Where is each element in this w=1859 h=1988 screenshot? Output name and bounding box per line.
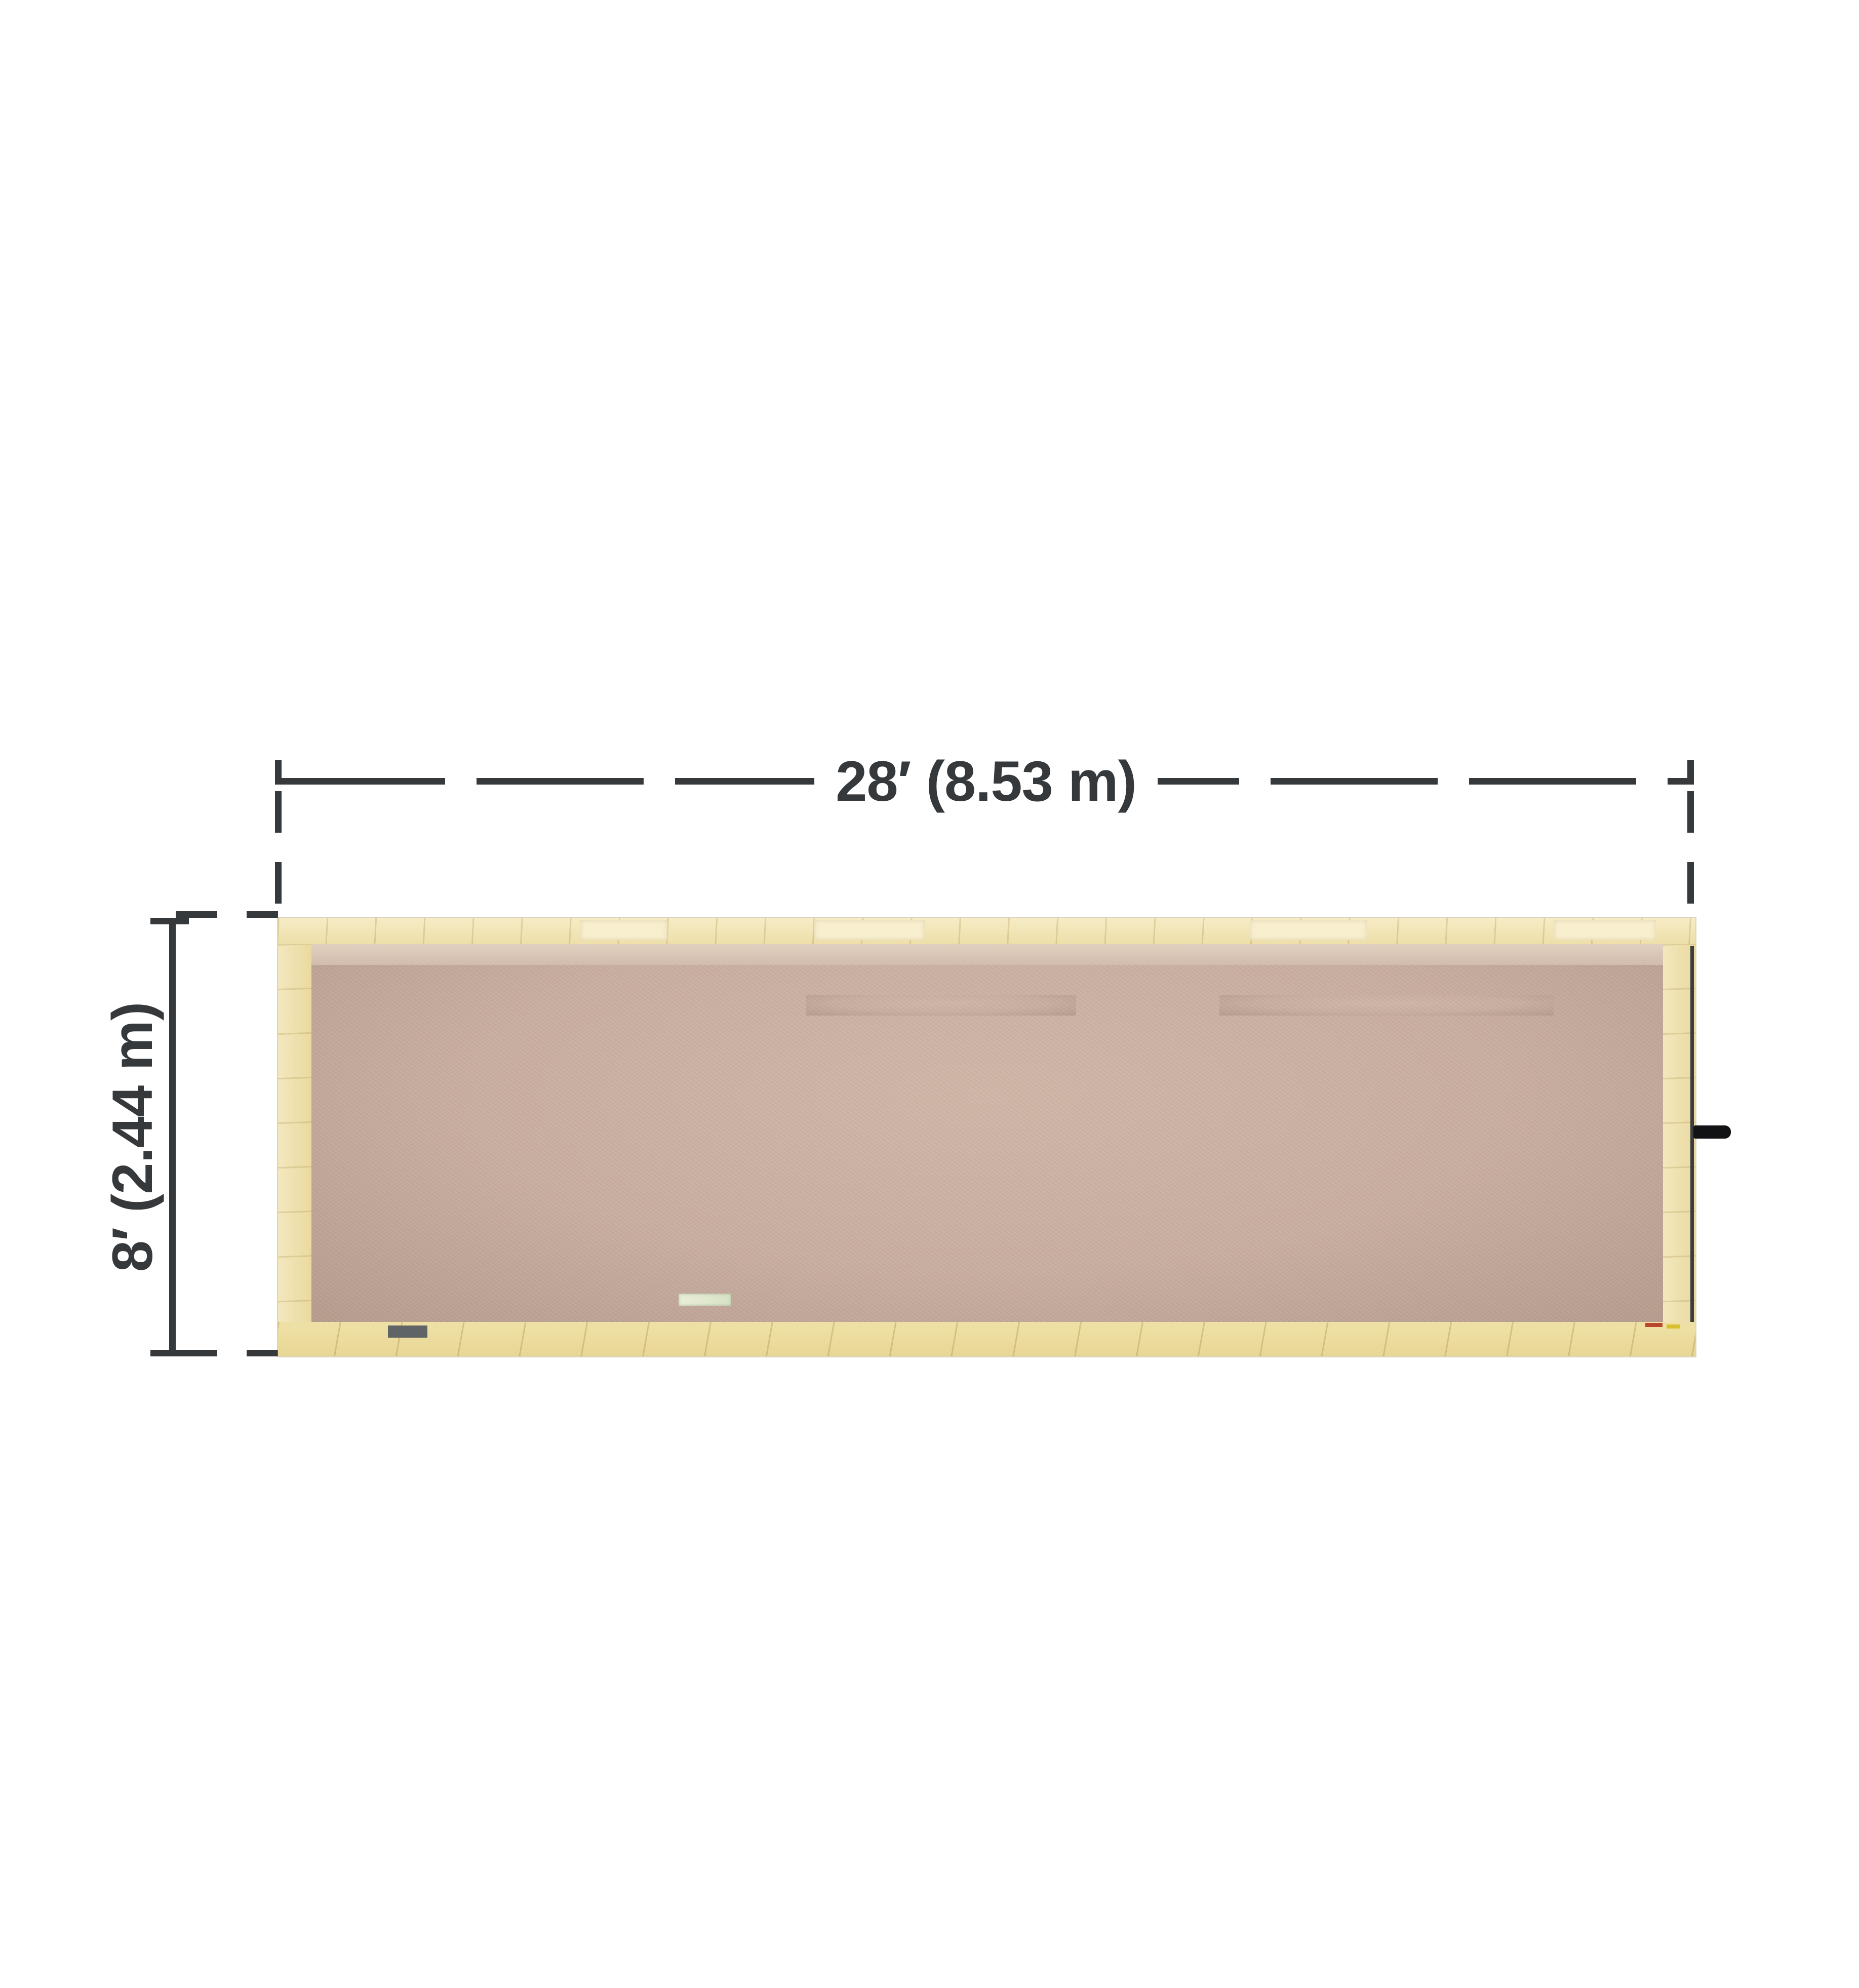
door-step	[620, 1324, 805, 1354]
depth-dimension-label: 8′ (2.44 m)	[100, 1002, 166, 1272]
stall-end-panel	[1562, 960, 1575, 1184]
toilet-tank-icon	[858, 978, 934, 1018]
door-handle-icon	[672, 1272, 682, 1282]
width-dimension-label: 28′ (8.53 m)	[814, 749, 1158, 814]
transom-window	[1554, 940, 1651, 955]
paper-towel-dispenser-icon	[636, 970, 693, 1010]
width-dimension-right-tick	[1687, 760, 1694, 785]
door-hinge-icon	[1119, 1271, 1130, 1289]
right-room-entry-door	[1117, 1269, 1295, 1322]
toilet-paper-dispenser-icon	[1303, 1108, 1338, 1143]
end-door-handle-icon	[1693, 1125, 1731, 1139]
toilet-paper-dispenser-icon	[1425, 1108, 1460, 1143]
floor-drain-icon	[1283, 1211, 1302, 1228]
toilet-bowl-icon	[868, 1017, 924, 1094]
transom-window	[1250, 940, 1362, 955]
stall-partition	[1219, 960, 1233, 1184]
toilet-paper-dispenser-icon	[1034, 1068, 1061, 1108]
faucet-spout-icon	[1131, 980, 1137, 998]
window-well	[1250, 920, 1367, 940]
screenshot-root: { "scene": { "type": "3d-floor-plan-top-…	[0, 0, 1859, 1988]
door-window-inset	[679, 1294, 731, 1306]
window-well	[580, 920, 667, 940]
faucet-spout-icon	[603, 998, 609, 1019]
width-extension-left	[275, 791, 282, 917]
step-mat-inset	[388, 1326, 427, 1338]
stall-latch-icon	[1463, 1174, 1474, 1183]
stall-front-rail	[806, 1139, 1076, 1151]
mirror-icon	[547, 968, 603, 982]
urinal-icon	[410, 1098, 480, 1146]
toilet-tank-icon	[972, 978, 1048, 1018]
threshold-step	[878, 1342, 983, 1355]
toilet-paper-dispenser-icon	[1527, 1108, 1562, 1143]
stall-front-rail	[1090, 1184, 1575, 1196]
depth-dimension-line	[169, 918, 176, 1356]
stall-partition	[1347, 960, 1360, 1184]
window-well	[814, 920, 925, 940]
ceiling-vent-icon	[383, 958, 455, 983]
depth-extension-bottom	[176, 1350, 278, 1356]
transom-window	[580, 940, 662, 955]
left-wall	[278, 944, 311, 1322]
threshold-mat	[875, 1316, 977, 1338]
urinal-privacy-shelf	[393, 1059, 520, 1074]
deck-mark	[1645, 1323, 1663, 1327]
stall-partition	[943, 960, 956, 1139]
toilet-bowl-icon	[982, 1017, 1038, 1094]
soap-dispenser-icon	[1090, 984, 1104, 1027]
toilet-paper-dispenser-icon	[918, 1068, 943, 1108]
stall-partition	[1469, 960, 1482, 1184]
room-divider-wall	[1076, 944, 1090, 1322]
floor-fitting-icon	[879, 1152, 891, 1162]
toilet-bowl-icon	[1486, 1017, 1542, 1094]
width-extension-right	[1687, 791, 1694, 917]
toilet-tank-icon	[1367, 978, 1443, 1018]
depth-extension-top	[176, 911, 278, 918]
stall-partition	[806, 960, 819, 1139]
threshold-step	[1454, 1342, 1577, 1355]
floor-fitting-icon	[507, 1117, 520, 1128]
depth-dimension-top-tick	[150, 918, 189, 924]
wall-fan-icon	[1631, 1204, 1671, 1261]
mirror-icon	[727, 968, 770, 982]
threshold-mat	[1450, 1316, 1572, 1338]
restroom-trailer-plan	[278, 918, 1695, 1356]
urinal-icon	[410, 1215, 480, 1266]
transom-window	[814, 940, 920, 955]
deck-mark	[1667, 1324, 1680, 1329]
width-dimension-left-tick	[275, 760, 282, 785]
door-step	[1134, 1324, 1294, 1354]
faucet-spout-icon	[763, 998, 769, 1019]
left-wall-inner-face	[311, 965, 326, 1297]
urinal-icon	[410, 997, 480, 1045]
toilet-tank-icon	[1238, 978, 1314, 1018]
urinal-privacy-shelf	[393, 1167, 520, 1183]
top-wall	[278, 918, 1695, 944]
toilet-bowl-icon	[1248, 1017, 1304, 1094]
toilet-tank-icon	[1476, 978, 1552, 1018]
floor-drain-icon	[740, 1114, 757, 1131]
toilet-bowl-icon	[1377, 1017, 1433, 1094]
window-well	[1554, 920, 1656, 940]
top-wall-inner-face	[311, 944, 1663, 965]
